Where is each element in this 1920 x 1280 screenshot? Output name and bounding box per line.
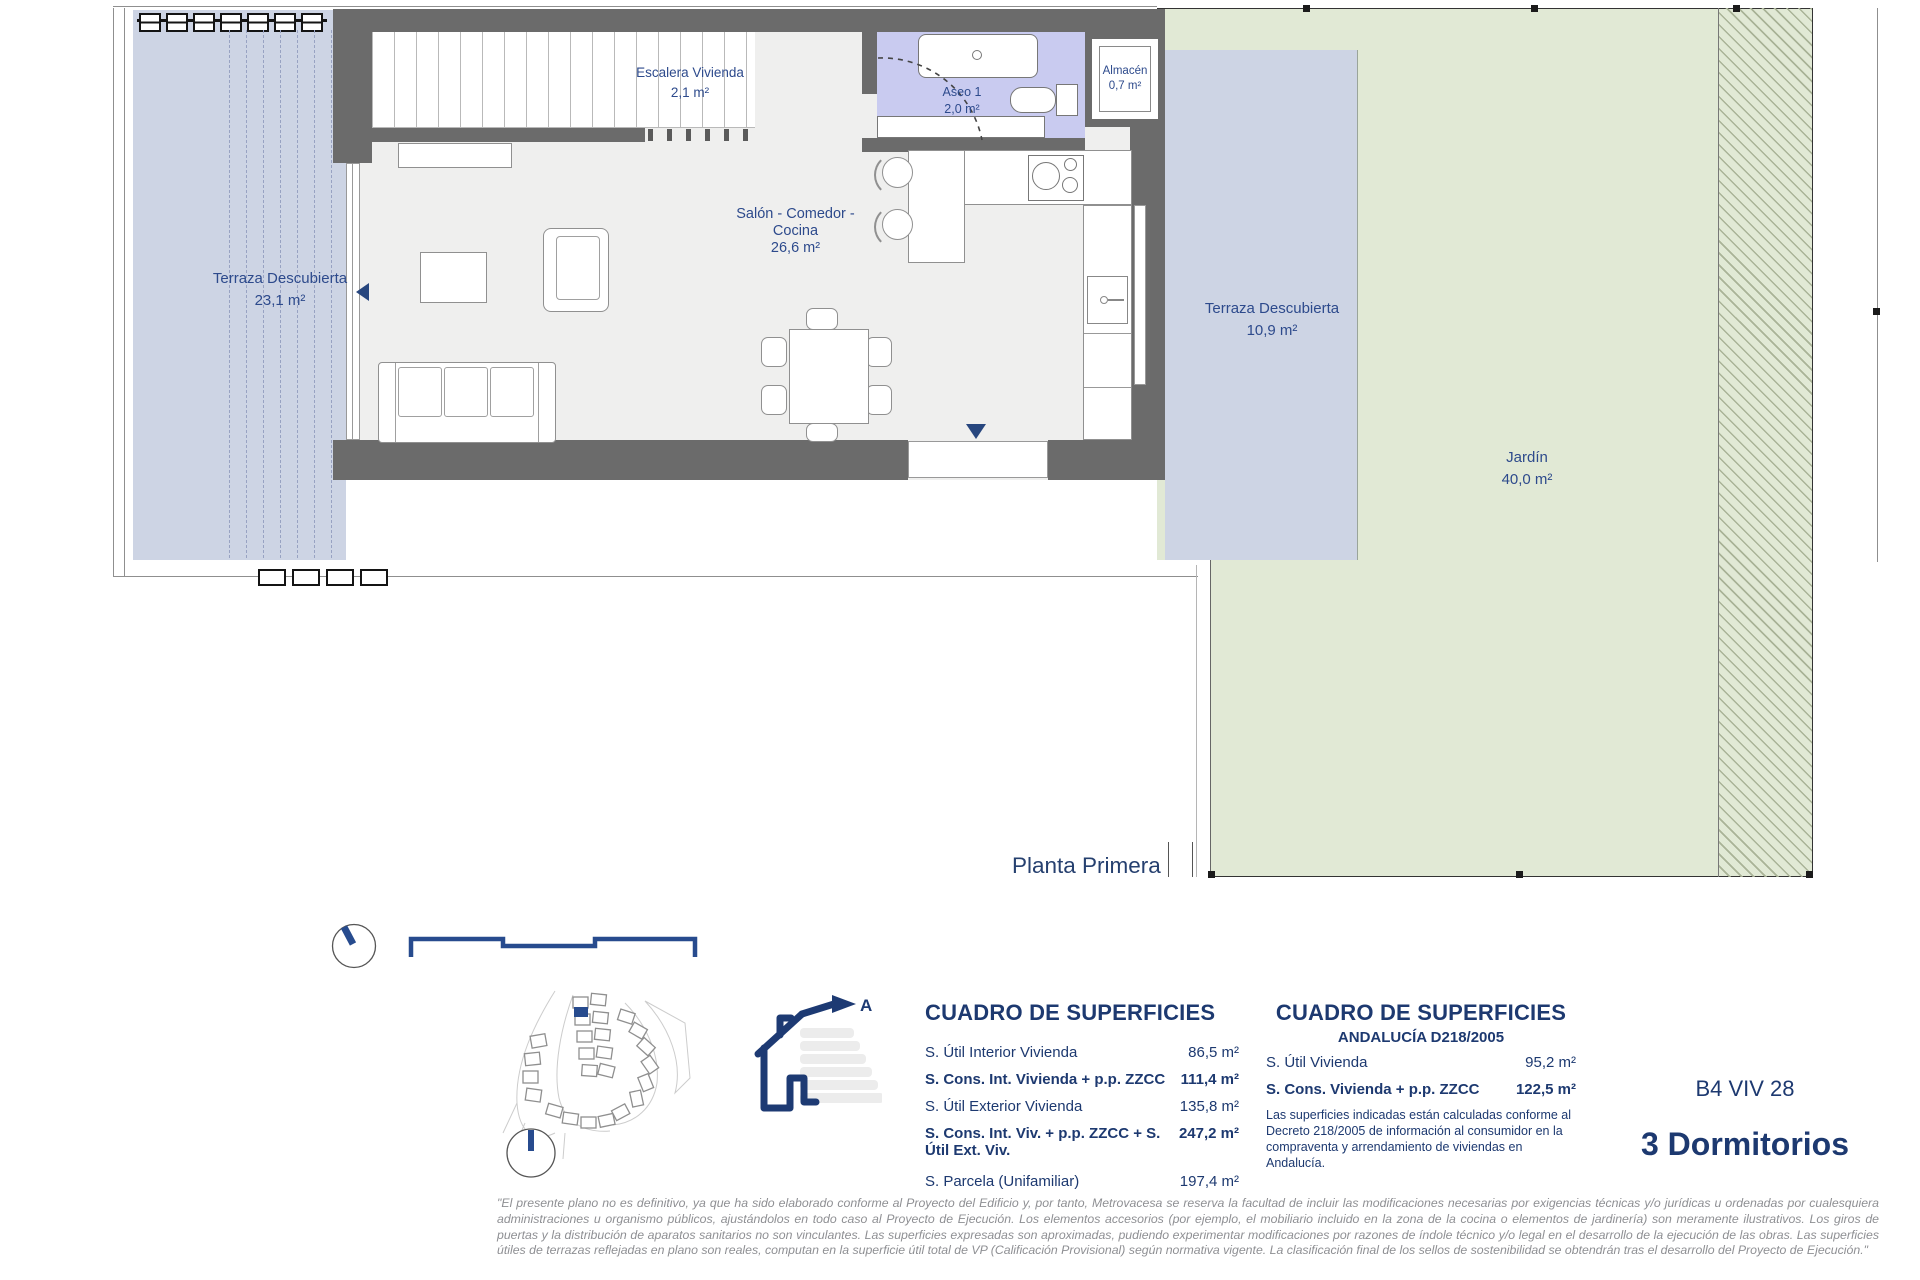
storage-room-box: Almacén 0,7 m²	[1099, 46, 1151, 112]
surface-value: 135,8 m²	[1180, 1098, 1239, 1115]
sofa	[378, 362, 556, 443]
sofa-cushion	[398, 367, 442, 417]
toilet-tank	[1056, 84, 1078, 116]
survey-point	[1733, 5, 1740, 12]
fence-post	[258, 569, 286, 586]
unit-type: 3 Dormitorios	[1625, 1126, 1865, 1163]
sideboard	[398, 143, 512, 168]
surface-label: S. Cons. Int. Vivienda + p.p. ZZCC	[925, 1071, 1181, 1088]
sink-faucet-line	[1108, 299, 1124, 301]
toilet-bowl	[1010, 87, 1056, 113]
fence-post	[326, 569, 354, 586]
room-area-text: 26,6 m²	[723, 240, 868, 257]
door-threshold	[908, 441, 1048, 478]
sofa-cushion	[444, 367, 488, 417]
parcel-line-right	[1196, 565, 1197, 877]
room-label-text: Almacén	[1100, 64, 1150, 79]
room-area-text: 2,1 m²	[610, 83, 770, 103]
parcel-line-left-inner	[124, 8, 125, 576]
dimension-line-b	[1192, 842, 1193, 877]
dining-table	[789, 329, 869, 424]
surface-row: S. Útil Exterior Vivienda 135,8 m²	[925, 1098, 1239, 1115]
window-right	[1134, 205, 1146, 385]
fence-post	[292, 569, 320, 586]
cooktop-burner	[1062, 177, 1078, 193]
pergola-clamp-icon	[274, 13, 296, 32]
energy-rating-letter: A	[860, 996, 872, 1015]
surface-value: 197,4 m²	[1180, 1173, 1239, 1190]
pergola-clamp-icon	[139, 13, 161, 32]
wall-top	[333, 9, 1165, 32]
surface-row: S. Cons. Int. Vivienda + p.p. ZZCC 111,4…	[925, 1071, 1239, 1088]
shower-tray	[877, 116, 1045, 138]
surface-label: S. Útil Interior Vivienda	[925, 1044, 1188, 1061]
energy-rating-house-icon: A	[750, 990, 882, 1130]
surface-table-subtitle: ANDALUCÍA D218/2005	[1266, 1029, 1576, 1046]
dining-chair	[866, 337, 892, 367]
survey-point	[1531, 5, 1538, 12]
kitchen-sink	[1087, 276, 1128, 324]
entry-marker-icon	[966, 424, 986, 439]
stair-dashed-rail	[648, 129, 755, 141]
dining-chair	[806, 308, 838, 330]
surface-value: 95,2 m²	[1525, 1054, 1576, 1071]
cabinet-divider	[1084, 387, 1131, 388]
parcel-line-top	[113, 6, 1157, 7]
surface-row: S. Parcela (Unifamiliar) 197,4 m²	[925, 1173, 1239, 1190]
pergola-clamp-icon	[166, 13, 188, 32]
pergola-clamp-icon	[301, 13, 323, 32]
bar-stool	[882, 157, 913, 188]
room-label-text: Terraza Descubierta	[195, 268, 365, 290]
survey-point	[1806, 871, 1813, 878]
room-label-jardin: Jardín 40,0 m²	[1447, 447, 1607, 491]
parcel-line-left-outer	[113, 8, 114, 576]
room-label-terraza-izquierda: Terraza Descubierta 23,1 m²	[195, 268, 365, 312]
room-area-text: 2,0 m²	[908, 101, 1016, 118]
sink-drain	[1100, 296, 1108, 304]
room-label-text: Terraza Descubierta	[1187, 298, 1357, 320]
survey-point	[1516, 871, 1523, 878]
surface-value: 86,5 m²	[1188, 1044, 1239, 1061]
fence-post	[360, 569, 388, 586]
wall-bottom-right	[1048, 440, 1165, 480]
room-label-escalera: Escalera Vivienda 2,1 m²	[610, 63, 770, 103]
sofa-armrest	[379, 363, 396, 442]
surface-table-title: CUADRO DE SUPERFICIES	[1266, 1000, 1576, 1026]
dining-chair	[761, 385, 787, 415]
surface-row: S. Útil Vivienda 95,2 m²	[1266, 1054, 1576, 1071]
room-label-terraza-derecha: Terraza Descubierta 10,9 m²	[1187, 298, 1357, 342]
pergola-clamp-icon	[193, 13, 215, 32]
unit-code: B4 VIV 28	[1625, 1076, 1865, 1102]
room-label-text: Cocina	[723, 223, 868, 240]
sofa-armrest	[538, 363, 555, 442]
cooktop-burner	[1032, 162, 1060, 190]
floor-plan-page: Almacén 0,7 m²	[0, 0, 1920, 1280]
wall-bottom-left	[333, 440, 908, 480]
room-label-aseo: Aseo 1 2,0 m²	[908, 84, 1016, 118]
armchair	[543, 228, 609, 312]
legal-disclaimer: "El presente plano no es definitivo, ya …	[497, 1196, 1879, 1259]
surface-value: 111,4 m²	[1181, 1071, 1239, 1088]
room-area-text: 40,0 m²	[1447, 469, 1607, 491]
bar-stool	[882, 209, 913, 240]
garden-hatched-strip	[1718, 8, 1813, 877]
dining-chair	[806, 423, 838, 442]
pergola-clamp-icon	[220, 13, 242, 32]
dimension-line-a	[1168, 842, 1169, 877]
compass-icon	[330, 922, 378, 970]
room-area-text: 23,1 m²	[195, 290, 365, 312]
unit-info: B4 VIV 28 3 Dormitorios	[1625, 1076, 1865, 1163]
surface-value: 247,2 m²	[1179, 1125, 1239, 1159]
surface-label: S. Cons. Vivienda + p.p. ZZCC	[1266, 1081, 1516, 1098]
surface-table-andalucia: CUADRO DE SUPERFICIES ANDALUCÍA D218/200…	[1266, 1000, 1576, 1171]
surface-label: S. Parcela (Unifamiliar)	[925, 1173, 1180, 1190]
wall-left	[333, 32, 372, 163]
coffee-table	[420, 252, 487, 303]
sofa-cushion	[490, 367, 534, 417]
section-profile-line	[408, 930, 698, 962]
room-label-almacen: Almacén 0,7 m²	[1100, 64, 1150, 94]
room-area-text: 0,7 m²	[1100, 79, 1150, 94]
room-label-salon: Salón - Comedor - Cocina 26,6 m²	[723, 206, 868, 257]
surface-value: 122,5 m²	[1516, 1081, 1576, 1098]
surface-label: S. Útil Exterior Vivienda	[925, 1098, 1180, 1115]
plan-title: Planta Primera	[1012, 853, 1161, 879]
cooktop-burner	[1064, 158, 1077, 171]
room-label-text: Escalera Vivienda	[610, 63, 770, 83]
survey-point	[1303, 5, 1310, 12]
survey-point	[1208, 871, 1215, 878]
surface-label: S. Útil Vivienda	[1266, 1054, 1525, 1071]
surface-table-title: CUADRO DE SUPERFICIES	[925, 1000, 1239, 1026]
room-area-text: 10,9 m²	[1187, 320, 1357, 342]
stair-wall	[372, 128, 645, 142]
room-label-text: Salón - Comedor -	[723, 206, 868, 223]
dining-chair	[866, 385, 892, 415]
surface-label: S. Cons. Int. Viv. + p.p. ZZCC + S. Útil…	[925, 1125, 1179, 1159]
armchair-seat	[556, 236, 600, 300]
cabinet-divider	[1084, 333, 1131, 334]
surface-table-note: Las superficies indicadas están calculad…	[1266, 1107, 1576, 1171]
sink-faucet	[972, 50, 982, 60]
parcel-line-far-right	[1877, 8, 1878, 562]
surface-row: S. Útil Interior Vivienda 86,5 m²	[925, 1044, 1239, 1061]
dining-chair	[761, 337, 787, 367]
room-label-text: Aseo 1	[908, 84, 1016, 101]
surface-row: S. Cons. Vivienda + p.p. ZZCC 122,5 m²	[1266, 1081, 1576, 1098]
surface-row: S. Cons. Int. Viv. + p.p. ZZCC + S. Útil…	[925, 1125, 1239, 1159]
highlighted-unit	[574, 1007, 588, 1017]
room-label-text: Jardín	[1447, 447, 1607, 469]
pergola-clamp-icon	[247, 13, 269, 32]
survey-point	[1873, 308, 1880, 315]
site-plan-map	[495, 983, 700, 1188]
surface-table: CUADRO DE SUPERFICIES S. Útil Interior V…	[925, 1000, 1239, 1190]
aseo-door-jamb	[862, 32, 877, 94]
